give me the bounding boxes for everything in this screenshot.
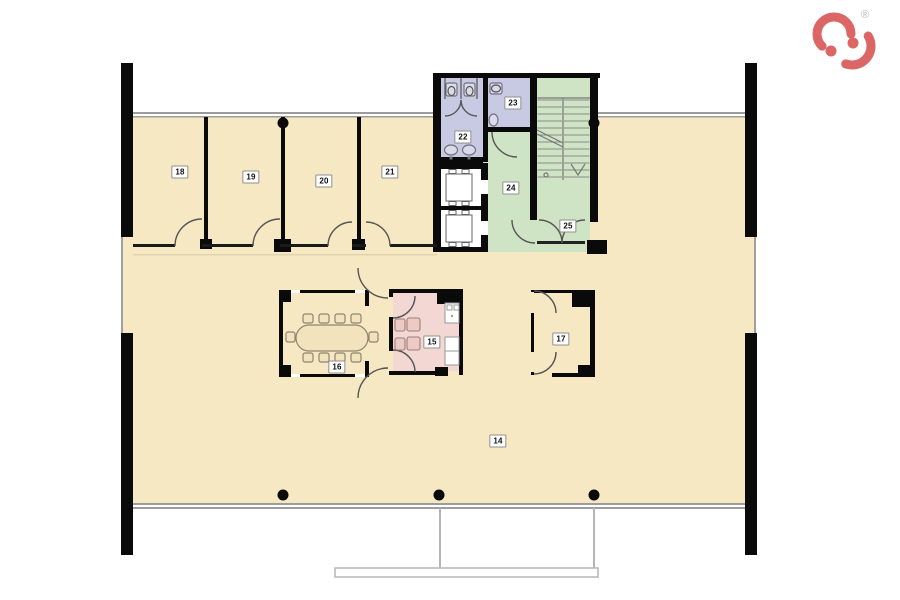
room-label-19: 19 xyxy=(242,171,259,184)
registered-trademark-symbol: ® xyxy=(861,9,869,21)
exterior-terrace xyxy=(335,508,598,577)
floor-plan-drawing xyxy=(0,0,900,600)
room-label-18: 18 xyxy=(171,166,188,179)
room-label-24: 24 xyxy=(502,182,519,195)
floor-plan: 14 15 16 17 18 19 20 21 22 23 24 25 ® xyxy=(0,0,900,600)
room-label-23: 23 xyxy=(504,97,521,110)
room-label-14: 14 xyxy=(489,435,506,448)
room-label-16: 16 xyxy=(328,361,345,374)
room-label-20: 20 xyxy=(315,175,332,188)
elevator-shaft xyxy=(433,163,488,252)
room-label-21: 21 xyxy=(381,166,398,179)
room-label-22: 22 xyxy=(454,131,471,144)
room-label-25: 25 xyxy=(559,220,576,233)
room-label-15: 15 xyxy=(423,336,440,349)
room-label-17: 17 xyxy=(552,333,569,346)
